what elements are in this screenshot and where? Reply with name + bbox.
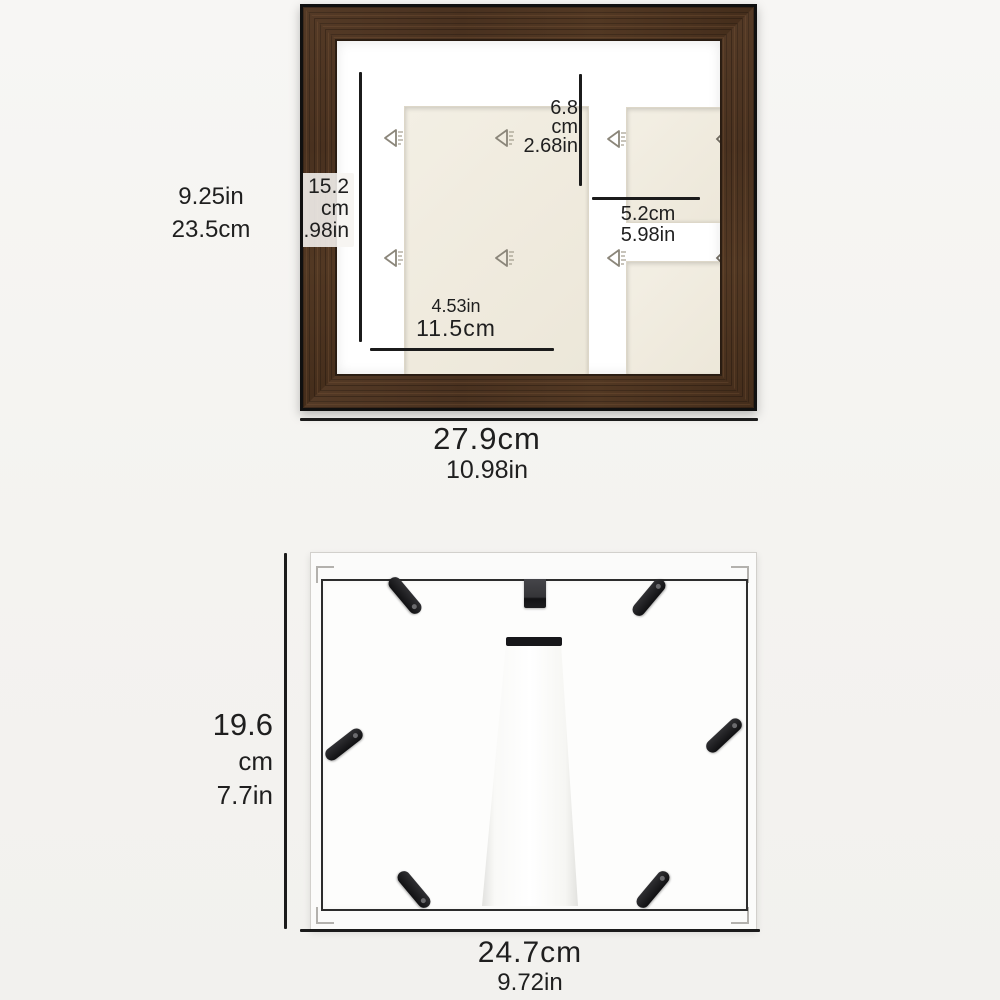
- frame-front-view: 15.2 cm 5.98in 6.8 cm 2.68in 4.53in 11.5…: [300, 4, 757, 411]
- frame-wood-border: 15.2 cm 5.98in 6.8 cm 2.68in 4.53in 11.5…: [303, 7, 754, 408]
- frame-back-view: [310, 552, 757, 930]
- main-opening-width-label: 4.53in 11.5cm: [396, 297, 516, 340]
- screw-icon: [411, 603, 418, 610]
- back-height-alt: 7.7in: [120, 778, 273, 812]
- main-width-in: 4.53in: [396, 297, 516, 316]
- frame-height-label: 9.25in 23.5cm: [146, 180, 276, 246]
- back-height-label: 19.6 cm 7.7in: [120, 706, 273, 812]
- main-height-value: 15.2: [303, 176, 349, 198]
- main-height-alt: 5.98in: [303, 220, 349, 242]
- frame-width-cm: 27.9cm: [387, 422, 587, 456]
- small-opening-height-label: 6.8 cm 2.68in: [458, 99, 578, 156]
- main-width-cm: 11.5cm: [396, 316, 516, 340]
- frame-height-in: 9.25in: [146, 180, 276, 213]
- dim-line-small-height: [579, 74, 582, 186]
- screw-icon: [420, 897, 427, 904]
- screw-icon: [655, 583, 662, 590]
- screw-icon: [659, 875, 666, 882]
- dim-line-small-width: [592, 197, 700, 200]
- frame-width-in: 10.98in: [387, 456, 587, 484]
- back-width-label: 24.7cm 9.72in: [430, 936, 630, 996]
- small-width-cm: 5.2cm: [588, 204, 708, 225]
- frame-side-top: [303, 7, 754, 41]
- hanging-hook-icon: [524, 579, 546, 608]
- small-width-in: 5.98in: [588, 225, 708, 246]
- frame-side-right: [720, 7, 754, 408]
- dim-line-main-height: [359, 72, 362, 342]
- dim-line-back-height: [284, 553, 287, 929]
- frame-height-cm: 23.5cm: [146, 213, 276, 246]
- main-height-unit: cm: [303, 198, 349, 220]
- dim-line-back-width: [300, 929, 760, 932]
- main-opening-height-label: 15.2 cm 5.98in: [303, 173, 354, 247]
- easel-hinge: [506, 637, 562, 646]
- back-height-unit: cm: [120, 744, 273, 778]
- frame-width-label: 27.9cm 10.98in: [387, 422, 587, 484]
- frame-side-bottom: [303, 374, 754, 408]
- screw-icon: [352, 732, 359, 739]
- back-width-cm: 24.7cm: [430, 936, 630, 969]
- small-height-alt: 2.68in: [458, 137, 578, 156]
- dim-line-main-width: [370, 348, 554, 351]
- product-dimension-diagram: 9.25in 23.5cm: [0, 0, 1000, 1000]
- small-opening-width-label: 5.2cm 5.98in: [588, 204, 708, 246]
- screw-icon: [731, 722, 738, 729]
- back-height-value: 19.6: [120, 706, 273, 744]
- back-width-in: 9.72in: [430, 969, 630, 996]
